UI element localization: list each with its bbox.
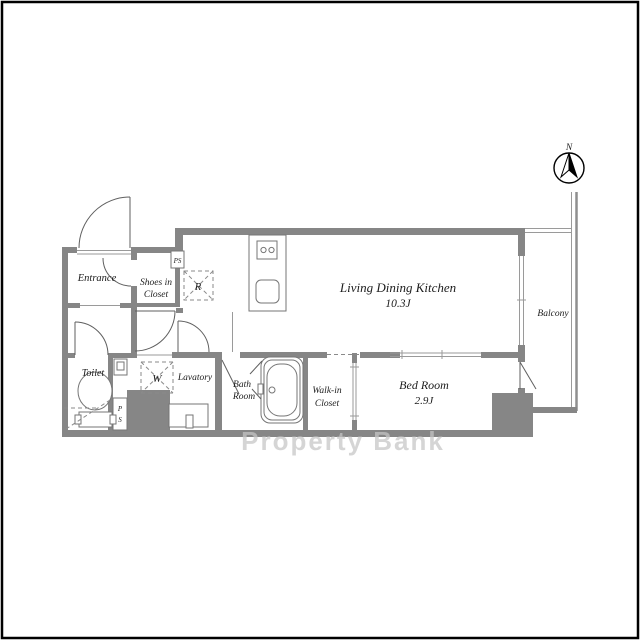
hall-ldk-door bbox=[178, 321, 209, 352]
wall-segment bbox=[62, 353, 75, 358]
lavatory-label: Lavatory bbox=[177, 373, 213, 383]
compass-north-label: N bbox=[565, 143, 573, 153]
wall-segment bbox=[215, 358, 222, 430]
ldk-label: Living Dining Kitchen bbox=[339, 280, 456, 295]
lavatory-sink-icon bbox=[169, 404, 208, 428]
balcony-door bbox=[520, 362, 536, 389]
water-heater-icon bbox=[114, 359, 127, 375]
entrance-label: Entrance bbox=[77, 273, 117, 284]
structural-column bbox=[492, 393, 533, 437]
bath-label-line2: Room bbox=[232, 392, 255, 402]
kitchen-counter bbox=[249, 235, 286, 311]
bathtub-icon bbox=[258, 357, 303, 423]
wall-mass bbox=[127, 390, 170, 437]
watermark: Property Bank bbox=[241, 426, 445, 456]
wall-segment bbox=[131, 252, 137, 260]
wall-segment bbox=[481, 352, 525, 358]
walk-in-closet-label-line1: Walk-in bbox=[312, 386, 341, 396]
pipe-shaft-bottom-label-line1: P bbox=[117, 405, 123, 413]
toilet-label: Toilet bbox=[82, 368, 105, 379]
ldk-size-label: 10.3J bbox=[385, 298, 411, 310]
fixtures bbox=[64, 235, 303, 430]
kitchen-sink-icon bbox=[256, 280, 279, 303]
wall-segment bbox=[131, 303, 180, 307]
bath-label-line1: Bath bbox=[233, 380, 251, 390]
wall-segment bbox=[303, 353, 308, 430]
refrigerator-label: R bbox=[194, 282, 202, 293]
pipe-shaft-top-label: PS bbox=[173, 257, 182, 265]
balcony-label: Balcony bbox=[537, 309, 569, 319]
pipe-shaft-bottom-label-line2: S bbox=[118, 416, 122, 424]
shoes-closet-label-line2: Closet bbox=[144, 290, 169, 300]
wall-segment bbox=[131, 307, 137, 357]
toilet-icon bbox=[64, 372, 116, 429]
front-door bbox=[79, 197, 130, 248]
wall-segment bbox=[62, 247, 77, 253]
image-border bbox=[2, 2, 638, 638]
corridor-door bbox=[135, 311, 175, 351]
pipe-shaft-bottom-box bbox=[113, 398, 127, 430]
ldk-window bbox=[517, 256, 526, 345]
toilet-door bbox=[75, 322, 108, 355]
north-compass-icon: N bbox=[554, 143, 584, 183]
wall-segment bbox=[62, 303, 80, 308]
floor-plan-page: N Entrance Shoes in Closet PS R Living D… bbox=[0, 0, 640, 640]
walk-in-closet-label-line2: Closet bbox=[315, 399, 340, 409]
wall-segment bbox=[518, 228, 525, 256]
wall-segment bbox=[176, 308, 183, 313]
wic-sliding-door bbox=[350, 363, 359, 420]
wall-segment bbox=[172, 352, 222, 358]
wall-segment bbox=[108, 353, 137, 358]
bedroom-size-label: 2.9J bbox=[415, 395, 435, 407]
floor-plan-drawing: N Entrance Shoes in Closet PS R Living D… bbox=[0, 0, 640, 640]
balcony-walls bbox=[525, 192, 577, 413]
shoes-closet-label-line1: Shoes in bbox=[140, 278, 172, 288]
washer-label: W bbox=[152, 373, 162, 385]
bedroom-label: Bed Room bbox=[399, 378, 449, 392]
bedroom-sliding-door bbox=[390, 350, 481, 359]
wall-segment bbox=[175, 228, 525, 235]
